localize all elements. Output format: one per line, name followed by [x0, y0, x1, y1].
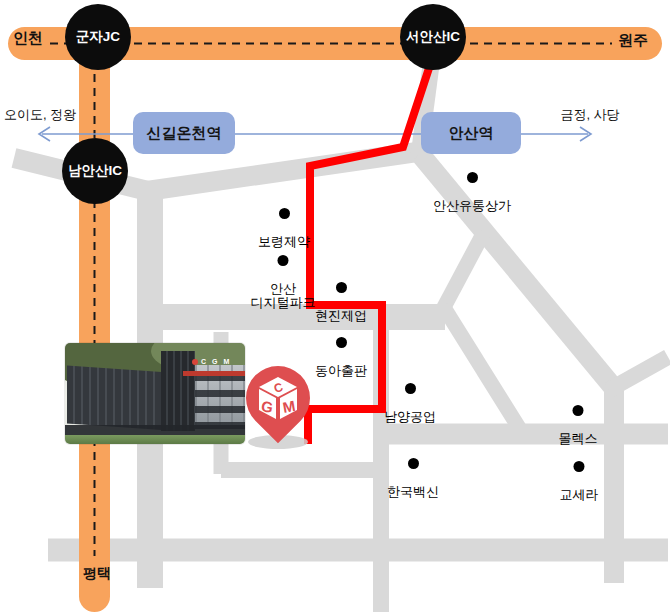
landmark-dot	[336, 337, 347, 348]
cgm-cube-logo: C G M	[255, 375, 301, 421]
landmark-namyang-industry: 남양공업	[384, 369, 436, 424]
landmark-label: 남양공업	[384, 409, 436, 424]
landmark-label: 동아출판	[315, 363, 367, 378]
junction-seoansan-ic: 서안산IC	[400, 4, 466, 70]
landmark-dot	[336, 282, 347, 293]
junction-label: 군자JC	[76, 28, 120, 46]
road	[443, 232, 484, 309]
landmark-ansan-digital-park: 안산 디지털파크	[251, 241, 316, 310]
photo-red-stripe	[183, 371, 245, 376]
landmark-donga-publishing: 동아출판	[315, 323, 367, 378]
landmark-label: 몰렉스	[559, 431, 598, 446]
destination-pin: C G M	[246, 358, 310, 446]
rail-direction-left: 오이도, 정왕	[4, 106, 76, 124]
landmark-dot	[574, 461, 585, 472]
landmark-molex: 몰렉스	[559, 391, 598, 446]
landmark-label: 한국백신	[387, 484, 439, 499]
landmark-dot	[573, 405, 584, 416]
landmark-dot	[278, 255, 289, 266]
photo-building-left-wing	[67, 365, 169, 430]
station-ansan: 안산역	[421, 112, 521, 154]
landmark-hyunjin: 현진제업	[315, 268, 367, 323]
landmark-label: 현진제업	[315, 308, 367, 323]
landmark-label: 안산유통상가	[433, 198, 511, 213]
landmark-dot	[408, 458, 419, 469]
rail-direction-right: 금정, 사당	[560, 106, 619, 124]
landmark-dot	[279, 208, 290, 219]
highway-label-pyeongtaek: 평택	[83, 565, 111, 583]
landmark-dot	[467, 172, 478, 183]
landmark-dot	[405, 383, 416, 394]
logo-text: C G M	[201, 358, 231, 365]
photo-company-logo: C G M	[192, 358, 245, 365]
station-singiloncheon: 신길온천역	[133, 112, 235, 154]
station-label: 신길온천역	[147, 124, 222, 143]
landmark-label: 안산 디지털파크	[251, 281, 316, 310]
road	[609, 357, 668, 390]
highway-label-wonju: 원주	[618, 31, 648, 50]
junction-gunja-jc: 군자JC	[65, 4, 131, 70]
landmark-label: 교세라	[560, 487, 599, 502]
road	[443, 306, 521, 431]
highway-label-incheon: 인천	[13, 29, 43, 48]
logo-emblem-icon	[192, 359, 198, 365]
landmark-ansan-distribution-mall: 안산유통상가	[433, 158, 511, 213]
junction-namansan-ic: 남안산IC	[62, 138, 128, 204]
photo-grass	[65, 435, 245, 444]
station-label: 안산역	[449, 124, 494, 143]
photo-building-tower	[161, 351, 195, 431]
landmark-kyocera: 교세라	[560, 447, 599, 502]
directions-map: 인천 원주 평택 군자JC 서안산IC 남안산IC 신길온천역 안산역 오이도,…	[0, 0, 670, 615]
road	[140, 151, 424, 192]
landmark-korea-vaccine: 한국백신	[387, 444, 439, 499]
junction-label: 서안산IC	[406, 28, 460, 46]
building-photo: C G M	[65, 343, 245, 444]
junction-label: 남안산IC	[68, 162, 122, 180]
